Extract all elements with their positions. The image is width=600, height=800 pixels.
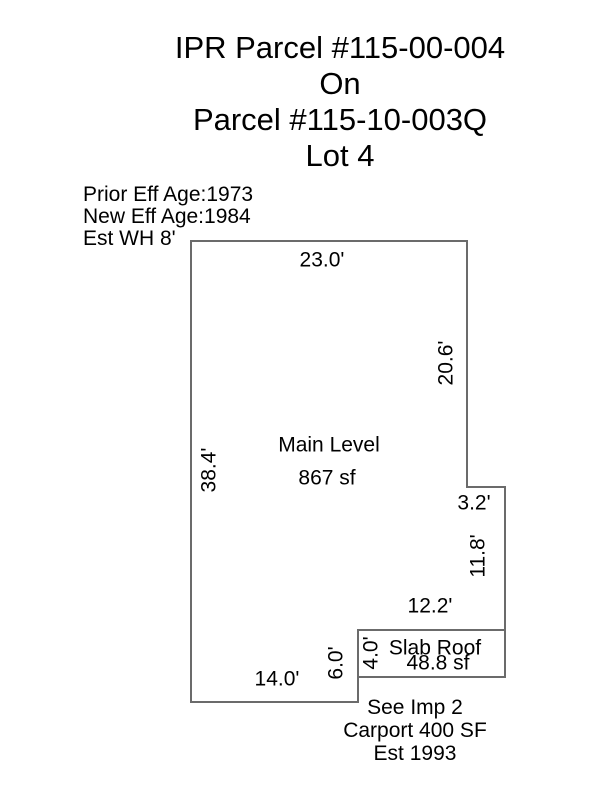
parcel-sketch-page: IPR Parcel #115-00-004 On Parcel #115-10…: [0, 0, 600, 800]
dim-label-top-23ft: 23.0': [300, 250, 345, 271]
sketch-canvas: [0, 0, 600, 800]
dim-label-bottom-14ft: 14.0': [255, 669, 300, 690]
dim-label-step-3ft: 3.2': [457, 493, 490, 514]
main-level-area: 867 sf: [298, 468, 355, 489]
footnote-est-year: Est 1993: [265, 742, 565, 765]
carport-footnote: See Imp 2 Carport 400 SF Est 1993: [265, 696, 565, 765]
slab-roof-area: 48.8 sf: [406, 653, 469, 674]
dim-label-slab-left-4ft: 4.0': [361, 636, 382, 669]
footnote-see-imp: See Imp 2: [265, 696, 565, 719]
dim-label-right-upper-20ft: 20.6': [436, 341, 457, 386]
dim-label-notch-6ft: 6.0': [326, 646, 347, 679]
main-level-name: Main Level: [278, 435, 380, 456]
dim-label-slab-top-12ft: 12.2': [408, 596, 453, 617]
dim-label-right-lower-11ft: 11.8': [468, 534, 489, 577]
dim-label-left-38ft: 38.4': [199, 448, 220, 493]
footnote-carport-sf: Carport 400 SF: [265, 719, 565, 742]
